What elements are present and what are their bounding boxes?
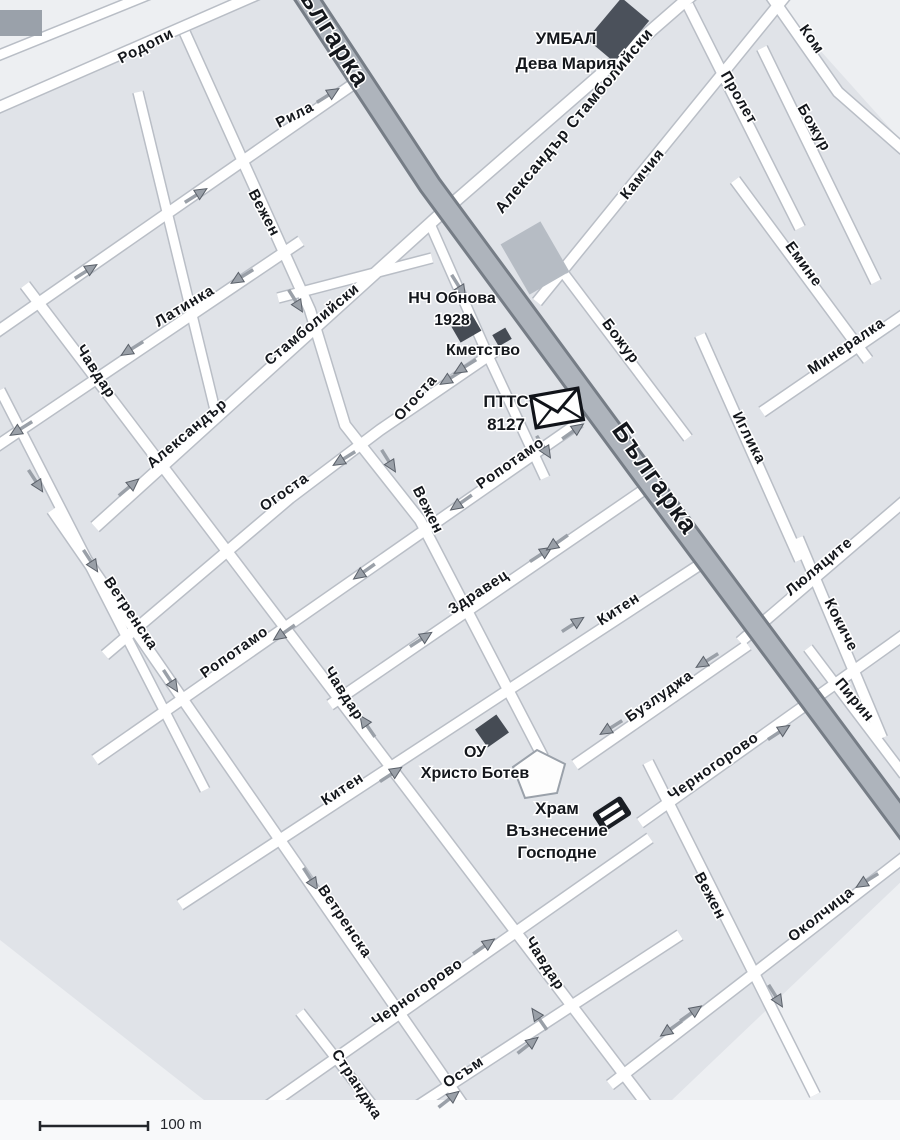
post-office-icon bbox=[531, 388, 584, 428]
town-map: РодопиРилаЛатинкаАлександърСтамболийскиА… bbox=[0, 0, 900, 1140]
poi-label: Кметство bbox=[446, 342, 520, 359]
map-margin bbox=[0, 1100, 900, 1140]
building bbox=[0, 10, 42, 36]
map-canvas: РодопиРилаЛатинкаАлександърСтамболийскиА… bbox=[0, 0, 900, 1140]
scale-bar-label: 100 m bbox=[160, 1116, 202, 1133]
